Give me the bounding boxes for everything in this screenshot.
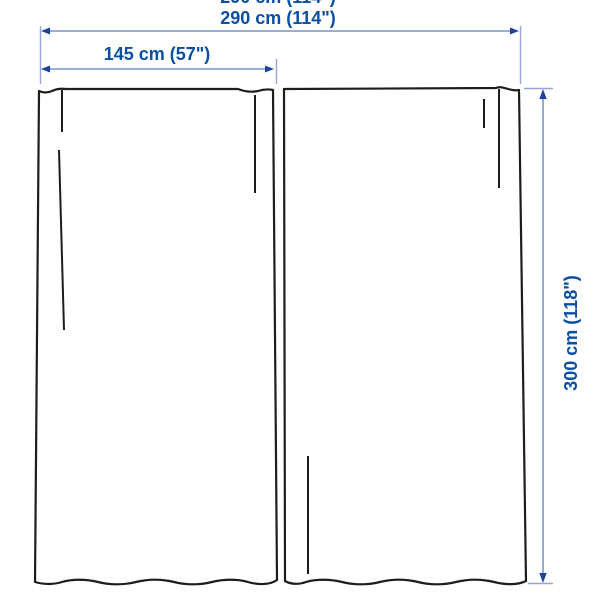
dimension-panel-width: 145 cm (57") <box>41 44 277 84</box>
arrow-up-icon <box>539 89 546 99</box>
cropped-top-dimension-label: 290 cm (114") <box>220 0 336 7</box>
curtain-dimension-diagram: 290 cm (114") 290 cm (114") 145 cm (57")… <box>0 0 600 600</box>
arrow-down-icon <box>539 573 546 583</box>
left-panel-outline <box>35 89 277 585</box>
arrow-left-icon <box>41 66 50 73</box>
curtain-panel-right <box>284 87 526 584</box>
fold-line <box>59 150 64 330</box>
right-panel-outline <box>284 87 526 584</box>
dimension-panel-height: 300 cm (118") <box>524 89 581 584</box>
total-width-label: 290 cm (114") <box>220 8 336 28</box>
curtain-panel-left <box>35 89 277 585</box>
arrow-left-icon <box>41 28 50 35</box>
diagram-canvas: 290 cm (114") 290 cm (114") 145 cm (57")… <box>0 0 600 600</box>
panel-width-label: 145 cm (57") <box>104 44 211 64</box>
arrow-right-icon <box>510 28 519 35</box>
arrow-right-icon <box>265 66 274 73</box>
panel-height-label: 300 cm (118") <box>561 275 581 391</box>
